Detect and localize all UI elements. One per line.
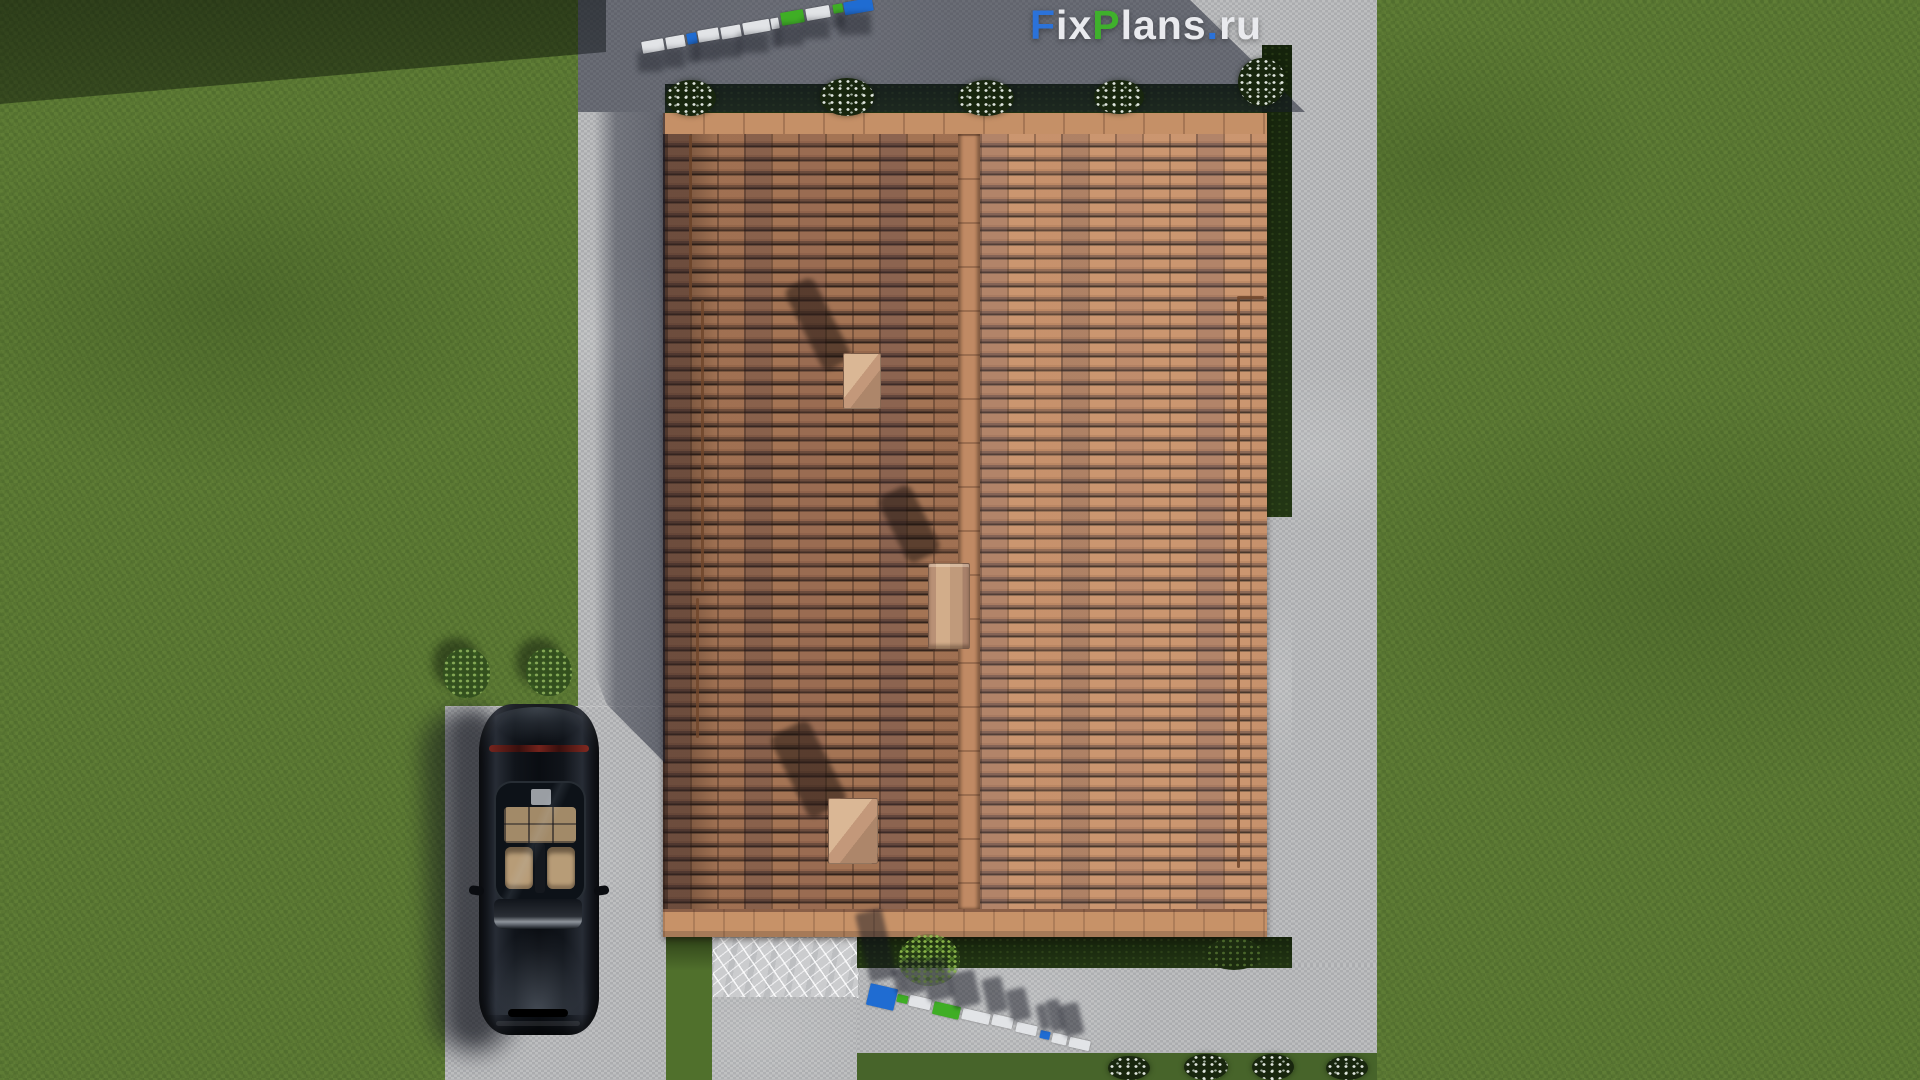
car: [476, 703, 602, 1037]
roof-eave-bottom: [663, 909, 1267, 937]
house-shadow-on-left-path: [594, 112, 665, 763]
watermark-part: lans: [1121, 2, 1207, 48]
roof-ridge-cap-top: [663, 113, 1267, 136]
watermark-logo: FixPlans.ru: [1030, 2, 1262, 49]
snow-guard-rail: [689, 135, 692, 300]
watermark-part: P: [1092, 2, 1120, 48]
watermark-part: ix: [1056, 2, 1092, 48]
flower-bush: [1094, 80, 1144, 114]
roof-vent: [843, 353, 881, 409]
car-sunroof-panel: [531, 789, 551, 805]
flower-bush: [1252, 1054, 1294, 1080]
watermark-part: .: [1207, 2, 1219, 48]
chimney: [928, 563, 970, 649]
car-seat-right: [547, 847, 575, 889]
snow-guard-rail: [1237, 298, 1240, 868]
flower-bush-corner: [1238, 58, 1286, 106]
marble-walkway: [712, 937, 859, 999]
car-taillight: [489, 745, 589, 752]
car-windshield-dashboard: [494, 899, 582, 929]
site-plan-render: FixPlans.ru: [0, 0, 1920, 1080]
flower-bush: [1184, 1054, 1228, 1080]
snow-guard-rail: [696, 598, 699, 738]
grass-strip-bottom-left: [666, 937, 712, 1080]
watermark-part: F: [1030, 2, 1056, 48]
logo-block: [641, 38, 665, 54]
walkway-apron: [712, 997, 857, 1080]
right-path-extension: [1267, 515, 1292, 939]
house-shadow-on-grass: [0, 0, 606, 130]
car-mirror-left: [468, 885, 484, 896]
flower-bush: [666, 80, 716, 116]
car-rear-cabin-interior: [504, 807, 576, 843]
car-hood-highlight: [486, 929, 590, 1015]
roof-vent: [828, 798, 878, 864]
flower-bush: [820, 78, 874, 116]
logo-block: [832, 3, 843, 14]
flower-bush: [958, 80, 1014, 116]
car-center-console: [535, 843, 545, 893]
logo-block: [805, 5, 831, 21]
house-roof: [663, 113, 1267, 937]
green-bush: [443, 648, 490, 698]
flower-bush: [1326, 1056, 1368, 1080]
snow-guard-rail: [1237, 296, 1264, 299]
green-bush: [526, 648, 572, 696]
car-front-bumper: [496, 1021, 580, 1026]
right-path: [1292, 45, 1377, 1055]
logo-block: [665, 34, 686, 49]
car-front-grill: [508, 1009, 568, 1017]
watermark-part: ru: [1219, 2, 1262, 48]
logo-block: [843, 0, 874, 15]
garden-bush: [1206, 938, 1262, 970]
roof-ridge-vertical: [958, 134, 980, 909]
snow-guard-rail: [701, 300, 704, 592]
car-seat-left: [505, 847, 533, 889]
car-roof-glass: [494, 781, 586, 903]
roof-right-slope: [980, 134, 1267, 909]
flower-bush: [1108, 1056, 1150, 1080]
car-rear-gloss: [488, 707, 588, 745]
